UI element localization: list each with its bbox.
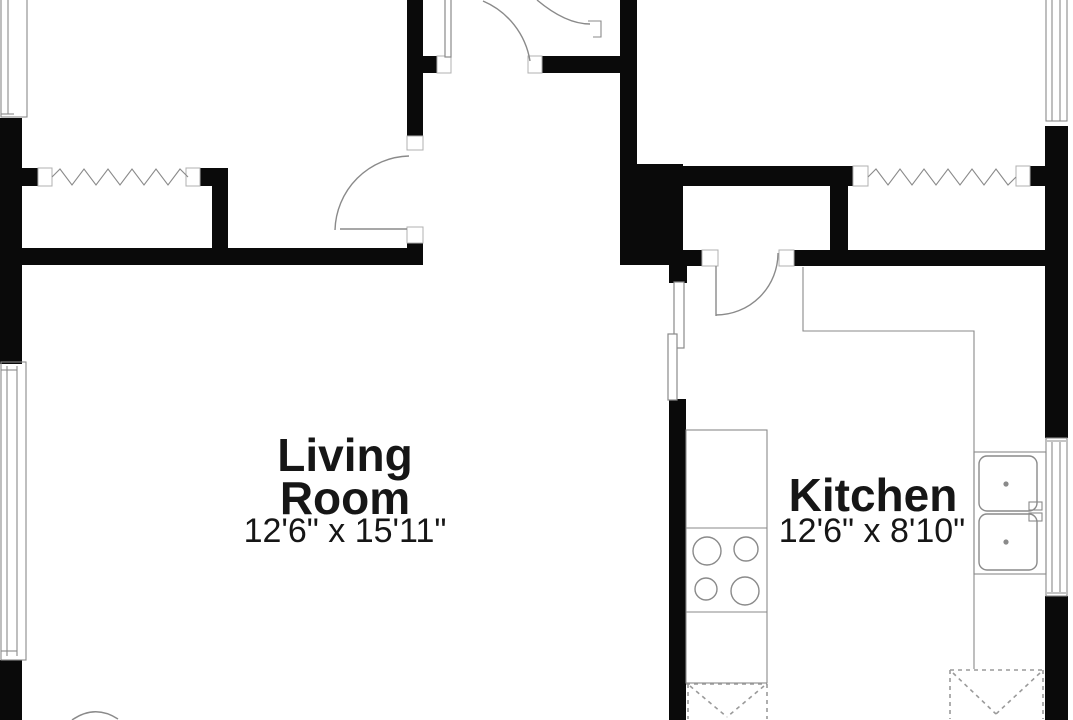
- door-kitchen: [716, 253, 778, 316]
- burner: [695, 578, 717, 600]
- wall-kitchen-upper-right: [793, 250, 1047, 266]
- floor-plan-svg: Living Room 12'6" x 15'11" Kitchen 12'6"…: [0, 0, 1073, 720]
- wall-hall-vertical-lower: [407, 242, 423, 265]
- floor-plan-page: Living Room 12'6" x 15'11" Kitchen 12'6"…: [0, 0, 1073, 720]
- door-hall-top: [445, 0, 530, 61]
- wall-left-upper: [0, 118, 22, 364]
- door-front-arc: [72, 712, 118, 720]
- wall-kitchen-left-lower: [669, 399, 686, 720]
- accordion-door-right: [868, 169, 1016, 185]
- jamb: [853, 166, 868, 186]
- wall-closet-left-stub-a: [20, 168, 38, 186]
- sink: [974, 452, 1046, 574]
- jamb: [779, 250, 794, 266]
- door-living-room: [335, 156, 409, 230]
- burner: [734, 537, 758, 561]
- door-jambs: [38, 56, 1030, 266]
- wall-right-lower: [1045, 596, 1068, 720]
- windows: [1, 0, 1067, 660]
- wall-hall-vertical-upper: [407, 0, 423, 137]
- sink-drain: [1003, 481, 1008, 486]
- wall-livingroom-top: [0, 248, 423, 265]
- jamb: [1016, 166, 1030, 186]
- window-right-kitchen: [1046, 438, 1067, 596]
- door-top-right: [537, 0, 601, 37]
- jamb: [407, 227, 423, 243]
- jamb: [186, 168, 200, 186]
- walls: [0, 0, 1068, 720]
- wall-kitchen-top: [630, 166, 853, 186]
- dishwasher-symbol: [686, 684, 767, 719]
- wall-closet-right-stub: [1030, 166, 1047, 186]
- living-room-dimensions: 12'6" x 15'11": [244, 512, 447, 550]
- burner: [693, 537, 721, 565]
- room-labels: Living Room 12'6" x 15'11" Kitchen 12'6"…: [244, 429, 966, 550]
- jamb: [38, 168, 52, 186]
- wall-right-upper: [1045, 126, 1068, 438]
- door-leaf-folded: [668, 282, 684, 400]
- counter-right: [803, 267, 974, 669]
- accordion-door-left: [52, 169, 188, 185]
- wall-closet-right-return: [830, 184, 848, 252]
- wall-hall-top-stub: [423, 56, 437, 73]
- wall-left-lower: [0, 660, 22, 720]
- jamb: [437, 56, 451, 73]
- wall-kitchen-left-tongue: [669, 265, 687, 283]
- wall-closet-left-return: [212, 168, 228, 253]
- stove: [693, 537, 759, 605]
- sink-drain: [1003, 539, 1008, 544]
- window-top-left: [1, 0, 27, 117]
- burner: [731, 577, 759, 605]
- kitchen-dimensions: 12'6" x 8'10": [779, 512, 965, 550]
- refrigerator-symbol: [950, 670, 1043, 719]
- wall-center-vertical: [620, 0, 637, 166]
- jamb: [407, 136, 423, 150]
- window-left-living: [1, 362, 26, 660]
- wall-kitchen-door-stub: [683, 250, 703, 266]
- window-top-right: [1046, 0, 1067, 121]
- jamb: [702, 250, 718, 266]
